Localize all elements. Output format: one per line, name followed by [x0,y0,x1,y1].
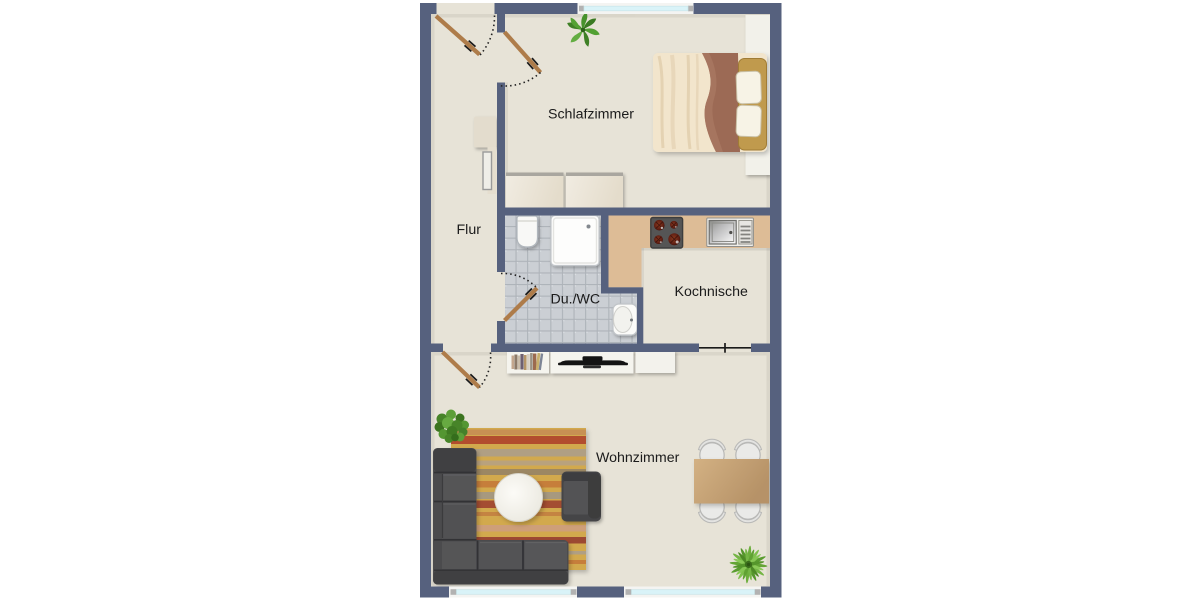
svg-text:Wohnzimmer: Wohnzimmer [596,450,680,466]
svg-text:Schlafzimmer: Schlafzimmer [548,107,634,123]
svg-text:Kochnische: Kochnische [675,284,748,300]
svg-text:Flur: Flur [457,222,482,238]
svg-text:Du./WC: Du./WC [551,292,601,308]
